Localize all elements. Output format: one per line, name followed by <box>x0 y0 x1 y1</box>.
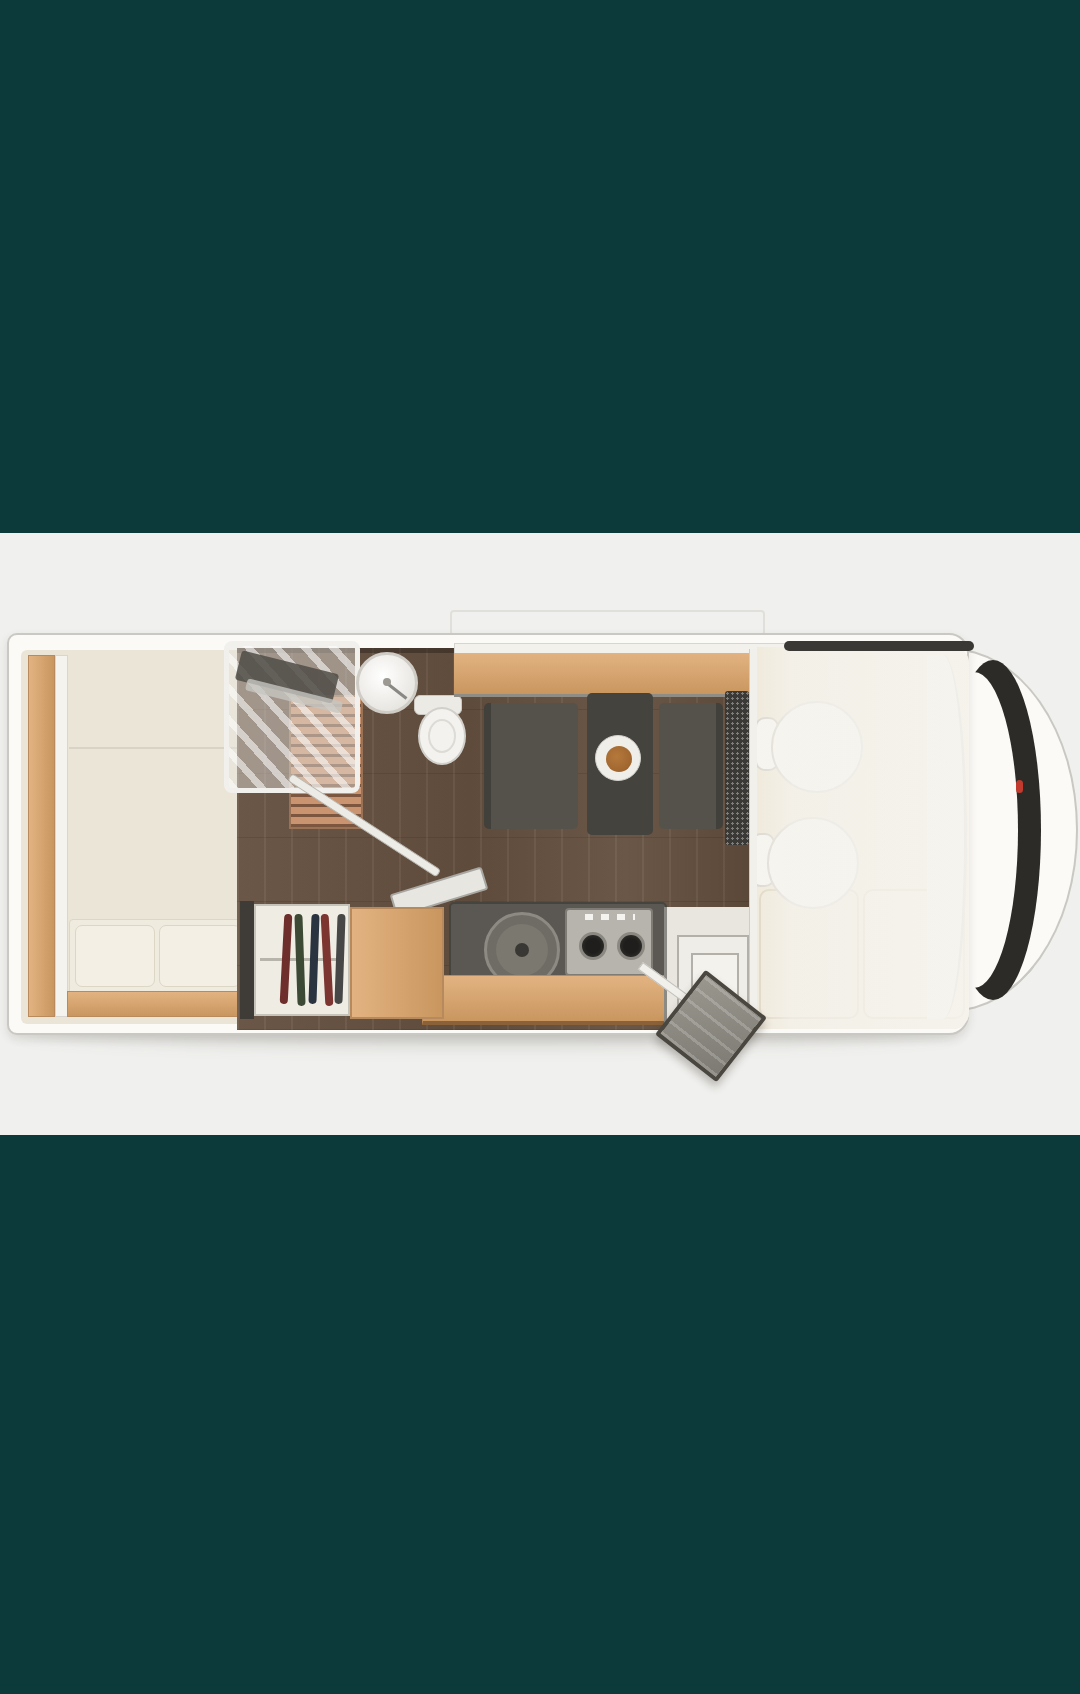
bed-edge-line <box>69 747 247 749</box>
cloth-item <box>294 914 305 1006</box>
cab-area <box>757 647 969 1029</box>
plate-food <box>606 746 632 772</box>
mirror-red-marker <box>1016 780 1023 793</box>
wardrobe <box>254 904 350 1016</box>
stove-burner <box>617 932 645 960</box>
washbasin <box>356 652 418 714</box>
cab-frost-overlay <box>757 647 969 1029</box>
kitchen-cabinet <box>350 907 444 1019</box>
kitchen-sink-drain <box>515 943 529 957</box>
wardrobe-gap <box>240 901 254 1019</box>
bedroom-shelf <box>28 655 55 1017</box>
cloth-item <box>334 914 345 1004</box>
cloth-item <box>308 914 319 1004</box>
shower-enclosure <box>224 641 360 793</box>
stove-burner <box>579 932 607 960</box>
toilet-bowl <box>418 707 466 765</box>
dinette-bench-right <box>659 703 723 829</box>
washbasin-drain <box>383 678 391 686</box>
bed-foot-shelf <box>67 991 247 1017</box>
bed-pillow <box>159 925 241 987</box>
dinette-plate <box>595 735 641 781</box>
van-body <box>7 633 969 1035</box>
dinette-bench-left <box>484 703 578 829</box>
bed-pillow <box>75 925 155 987</box>
stove-controls <box>585 914 635 920</box>
seat-fabric-strip <box>725 691 749 845</box>
kitchen-front-counter <box>422 975 669 1025</box>
toilet-lid-line <box>428 719 456 753</box>
bedroom-divider-wall <box>55 655 68 1017</box>
cab-roof-trim <box>784 641 974 651</box>
page-background <box>0 0 1080 1694</box>
